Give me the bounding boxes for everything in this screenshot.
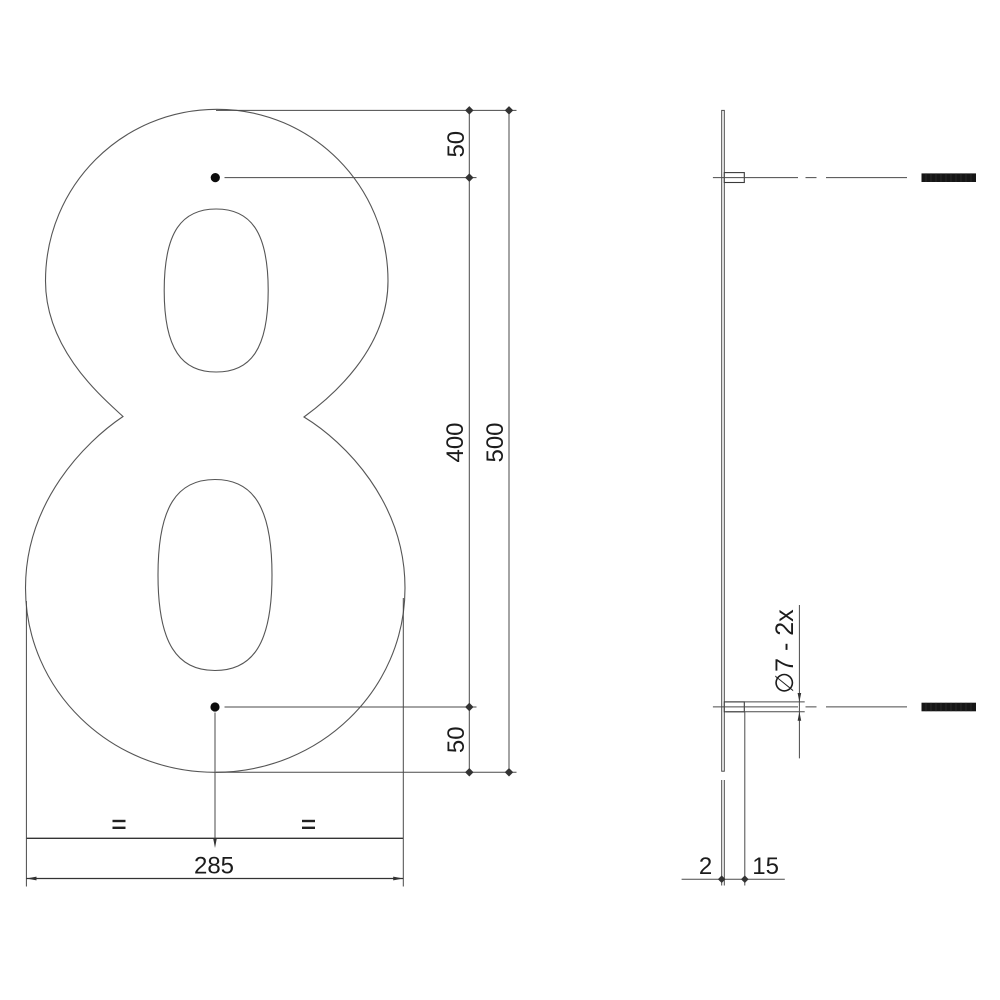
svg-text:400: 400: [442, 422, 469, 462]
svg-text:50: 50: [443, 131, 470, 158]
svg-text:285: 285: [194, 853, 234, 880]
svg-text:15: 15: [752, 853, 779, 880]
svg-text:50: 50: [443, 726, 470, 753]
svg-text:500: 500: [482, 422, 509, 462]
svg-text:2: 2: [699, 853, 712, 880]
svg-text:∅7 - 2x: ∅7 - 2x: [771, 609, 799, 694]
